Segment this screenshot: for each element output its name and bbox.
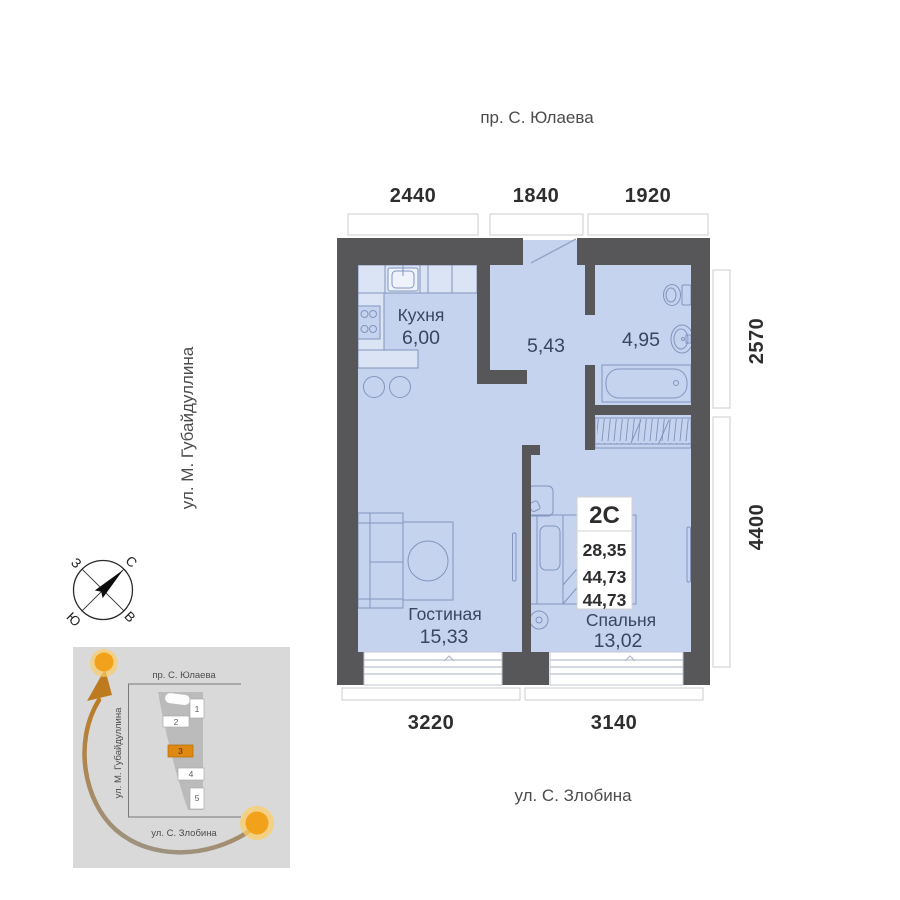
minimap-building-4-number: 4 [189, 769, 194, 779]
wall-bottom-pier [502, 652, 549, 685]
street-left-label: ул. М. Губайдуллина [178, 346, 197, 509]
window-living [364, 652, 502, 685]
location-minimap: 1 2 3 4 5 пр. С. Юлаева ул. М. Губайдулл… [73, 647, 290, 868]
dim-right-2: 4400 [746, 504, 768, 551]
dim-bottom-1: 3220 [408, 712, 455, 734]
minimap-street-left: ул. М. Губайдуллина [113, 707, 124, 798]
dim-top-3: 1920 [625, 185, 672, 207]
dim-top-2: 1840 [513, 185, 560, 207]
dim-right-1: 2570 [746, 318, 768, 365]
dim-top-1: 2440 [390, 185, 437, 207]
apartment-value-1: 28,35 [583, 540, 627, 560]
sun-icon-evening [240, 806, 274, 840]
floor-plan-canvas: пр. С. Юлаева ул. М. Губайдуллина ул. С.… [0, 0, 900, 900]
wardrobe-icon [595, 418, 691, 448]
apartment-value-2: 44,73 [583, 567, 627, 587]
street-bottom-label: ул. С. Злобина [514, 786, 632, 805]
compass-north: С [123, 553, 141, 571]
bedroom-area: 13,02 [594, 630, 643, 652]
dim-bottom-2: 3140 [591, 712, 638, 734]
street-top-label: пр. С. Юлаева [480, 108, 594, 127]
wall-left [337, 238, 358, 685]
hallway-area: 5,43 [527, 335, 565, 357]
wall-kitchen-divider [477, 265, 490, 372]
minimap-building-3-number: 3 [178, 746, 183, 756]
wall-kitchen-stub [477, 370, 527, 384]
bracket-top-2 [490, 214, 583, 235]
wall-top-right [577, 238, 710, 265]
compass-icon: С В Ю З [39, 527, 167, 655]
wall-room-divider [522, 445, 531, 652]
wall-right [691, 238, 710, 685]
minimap-building-1-number: 1 [195, 704, 200, 714]
minimap-building-2-number: 2 [174, 717, 179, 727]
bracket-right-2 [713, 417, 730, 667]
bracket-bottom-1 [342, 688, 520, 700]
wall-top-left [337, 238, 523, 265]
window-bedroom [550, 652, 683, 685]
kitchen-label: Кухня [398, 305, 445, 325]
kitchen-area: 6,00 [402, 327, 440, 349]
stove-icon [358, 306, 380, 339]
compass-south: Ю [64, 609, 84, 629]
minimap-street-top: пр. С. Юлаева [152, 670, 216, 681]
bracket-top-1 [348, 214, 478, 235]
bathroom-area: 4,95 [622, 329, 660, 351]
bracket-right-1 [713, 270, 730, 408]
wall-bottom-left [337, 652, 364, 685]
living-label: Гостиная [408, 604, 481, 624]
apartment-type: 2С [589, 502, 620, 529]
sun-icon-morning [90, 649, 118, 677]
bedroom-label: Спальня [586, 610, 656, 630]
apartment-value-3: 44,73 [583, 590, 627, 610]
minimap-building-5-number: 5 [195, 793, 200, 803]
minimap-street-bottom: ул. С. Злобина [151, 828, 217, 839]
apartment-card: 2С 28,35 44,73 44,73 [577, 497, 632, 610]
living-area: 15,33 [420, 626, 469, 648]
wall-bottom-right [683, 652, 710, 685]
bracket-top-3 [588, 214, 708, 235]
wall-bath-west-upper [585, 265, 595, 315]
wall-bath-south [585, 405, 691, 415]
kitchen-table [358, 350, 418, 368]
bracket-bottom-2 [525, 688, 703, 700]
